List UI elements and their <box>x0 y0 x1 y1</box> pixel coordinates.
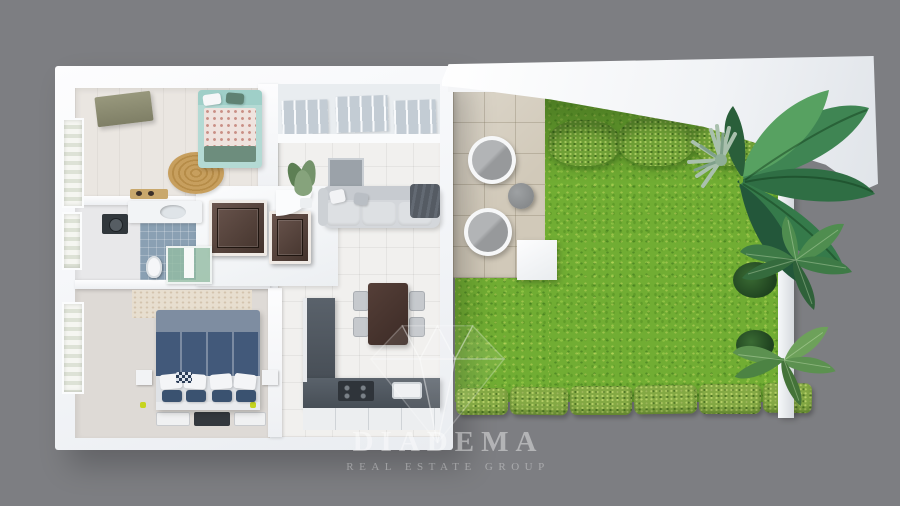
hedge-block <box>570 386 632 415</box>
master-bed-fold <box>156 310 260 332</box>
hallway-door <box>209 200 267 256</box>
shower-panel <box>184 248 194 278</box>
pillow <box>212 390 232 402</box>
palm-plant <box>726 316 846 408</box>
nightstand <box>136 370 152 385</box>
washing-machine <box>102 214 128 234</box>
decor-item <box>140 402 146 408</box>
washer-door <box>109 218 123 232</box>
lounge-chair <box>464 208 512 256</box>
checkered-pillow <box>176 372 192 383</box>
dining-chair <box>353 291 369 311</box>
sink-basin <box>160 205 186 219</box>
lounge-cushion <box>472 140 512 180</box>
toy-bowl <box>148 191 154 196</box>
hallway-door <box>269 211 311 264</box>
kids-bed-blanket <box>204 146 256 162</box>
hedge-block <box>634 384 697 414</box>
terrace-wall-segment <box>517 240 557 280</box>
pillow <box>162 390 182 402</box>
glass-shower <box>166 246 212 284</box>
lounge-cushion <box>468 212 508 252</box>
pillow <box>209 373 232 390</box>
sofa-cushion <box>326 202 360 226</box>
lounge-chair <box>468 136 516 184</box>
window <box>62 118 84 208</box>
window-pane <box>335 95 388 133</box>
nightstand <box>262 370 278 385</box>
sofa-armrest <box>318 188 328 226</box>
runner-rug <box>156 412 190 426</box>
toilet <box>146 256 162 278</box>
sofa-throw <box>410 184 440 218</box>
runner-rug <box>194 412 230 426</box>
pillow <box>236 390 256 402</box>
window <box>62 302 84 394</box>
watermark-tagline: REAL ESTATE GROUP <box>336 461 560 473</box>
sofa-cushion <box>362 202 396 226</box>
toy-bowl <box>136 191 142 196</box>
counter-edge <box>303 298 307 382</box>
pillow <box>353 192 369 206</box>
master-bed-duvet <box>156 332 260 376</box>
pillow <box>186 390 206 402</box>
window-sill <box>278 134 440 143</box>
side-table <box>508 183 534 209</box>
dining-chair <box>409 291 425 311</box>
window <box>62 212 82 270</box>
window-pane <box>393 99 436 134</box>
door-panel <box>217 208 259 248</box>
watermark-brand: DIADEMA <box>336 426 560 459</box>
agave-plant <box>689 126 735 186</box>
hedge-bush <box>548 120 620 166</box>
render-canvas: DIADEMA REAL ESTATE GROUP <box>0 0 900 506</box>
pillow <box>226 92 245 105</box>
door-panel <box>277 219 303 256</box>
kids-bed-duvet <box>204 108 256 148</box>
palm-plant <box>738 212 858 312</box>
master-bed-base <box>156 402 260 410</box>
pillow <box>233 373 257 391</box>
plant-pot <box>300 198 312 208</box>
runner-rug <box>234 412 266 426</box>
window-pane <box>281 99 328 135</box>
kitchen-counter <box>303 298 335 382</box>
decor-item <box>250 402 256 408</box>
interior-wall <box>268 288 282 437</box>
